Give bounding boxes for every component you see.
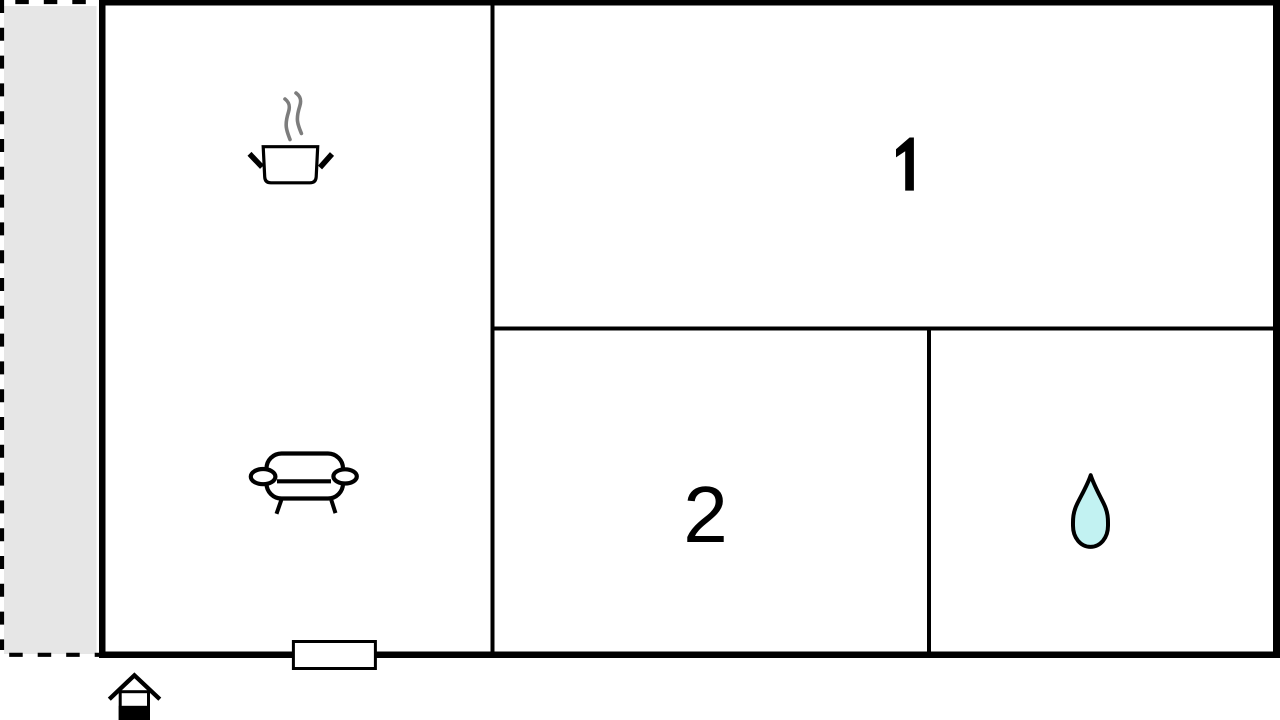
svg-text:2: 2 xyxy=(683,470,728,559)
